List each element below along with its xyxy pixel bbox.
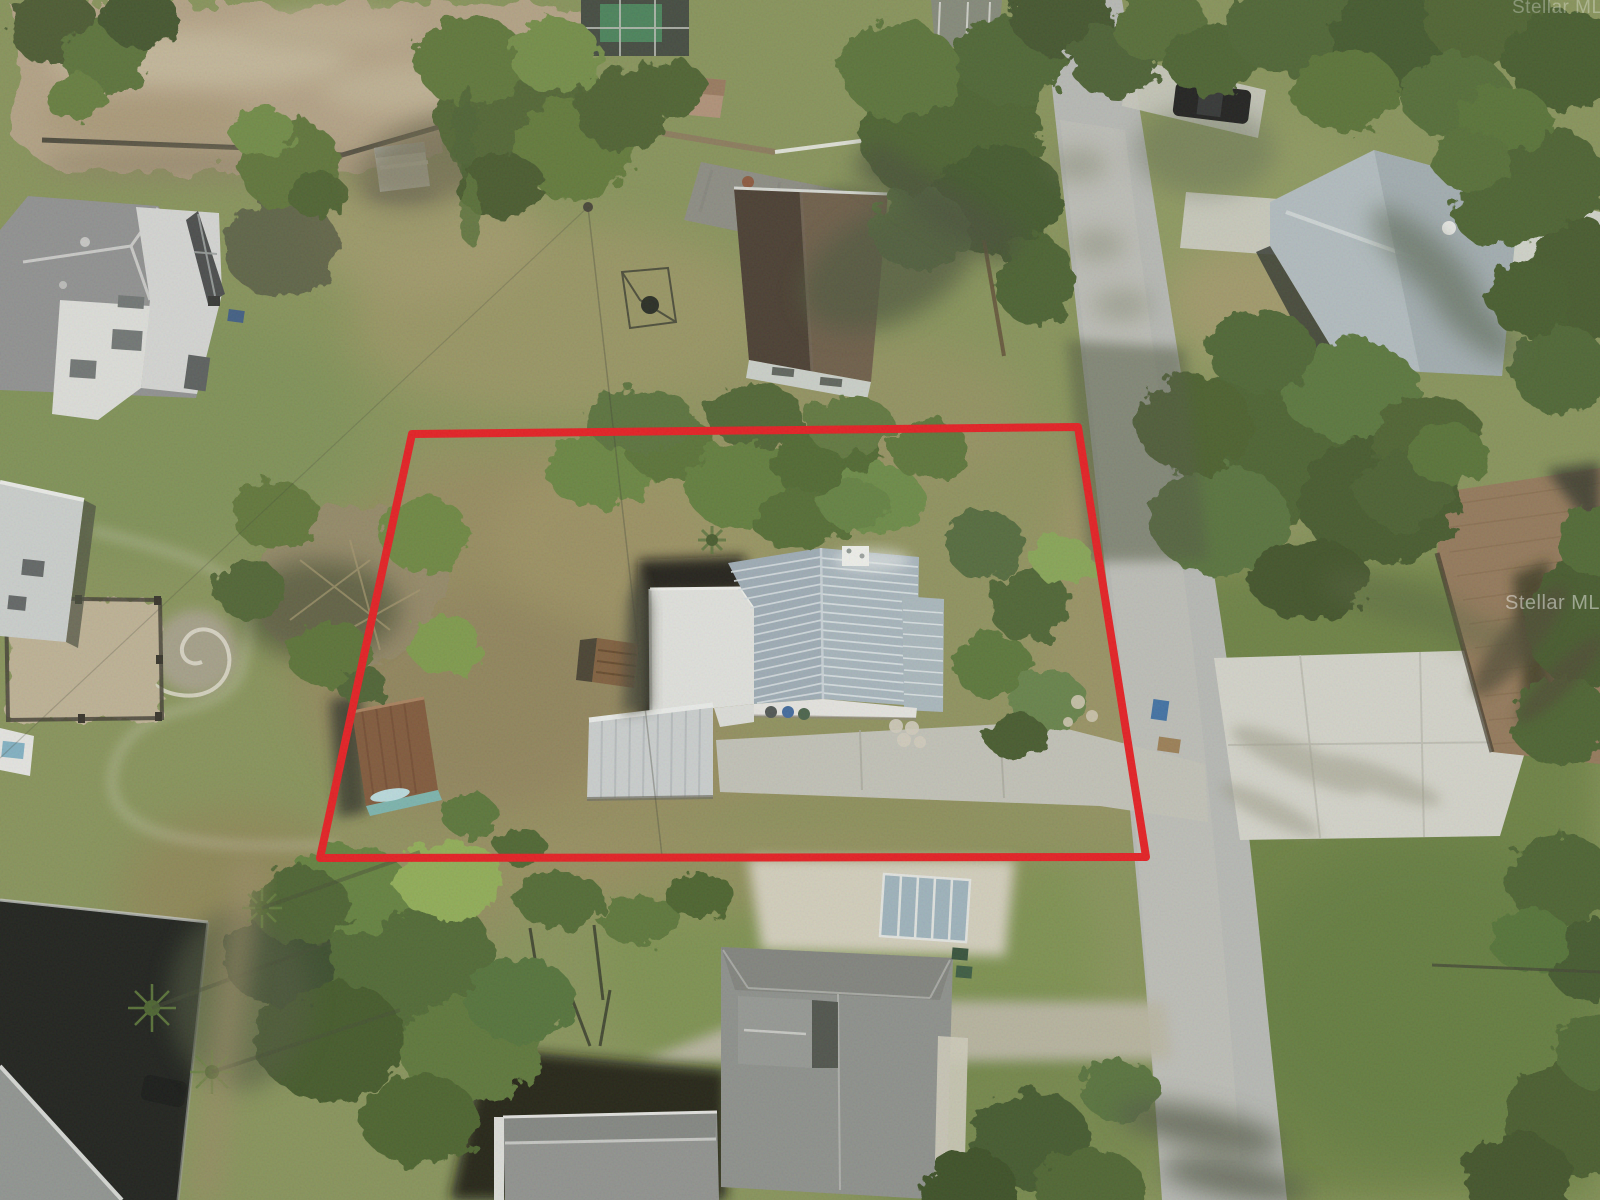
svg-text:Stellar MLS: Stellar MLS [1512, 0, 1600, 18]
svg-text:Stellar MLS: Stellar MLS [1505, 592, 1600, 614]
